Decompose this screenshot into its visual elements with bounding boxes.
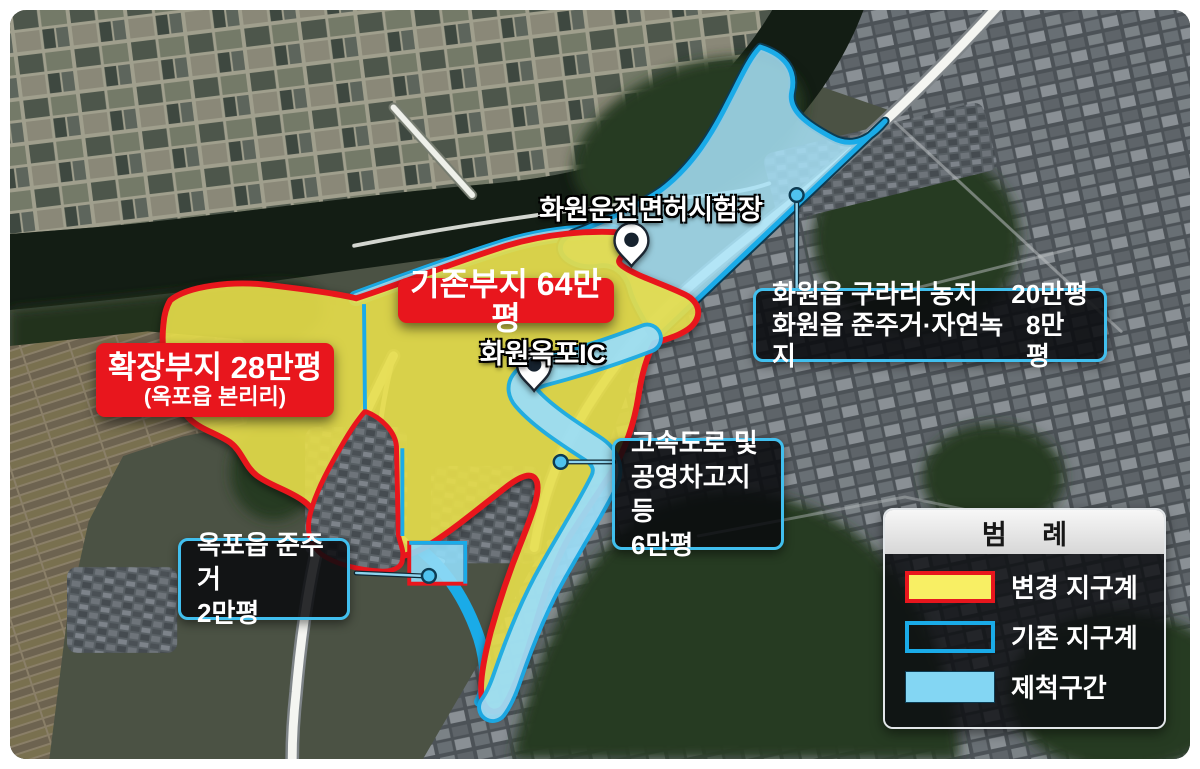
leader-dot-highway	[554, 455, 568, 469]
gurari-row-2-label: 화원읍 준주거·자연녹지	[772, 310, 1026, 372]
highway-callout-line-3: 6만평	[631, 528, 765, 562]
highway-callout-line-1: 고속도로 및	[631, 426, 765, 460]
existing-site-title: 기존부지 64만평	[398, 267, 614, 335]
okpo-callout: 옥포읍 준주거 2만평	[178, 538, 350, 620]
gurari-row-1-label: 화원읍 구라리 농지	[772, 279, 978, 310]
okpo-callout-line-2: 2만평	[197, 596, 331, 630]
gurari-row-2: 화원읍 준주거·자연녹지 8만평	[772, 310, 1088, 372]
leader-dot-okpo	[422, 569, 436, 583]
highway-callout-line-2: 공영차고지 등	[631, 460, 765, 528]
license-site-label: 화원운전면허시험장	[506, 188, 796, 227]
gurari-row-2-value: 8만평	[1026, 310, 1088, 372]
highway-callout: 고속도로 및 공영차고지 등 6만평	[612, 438, 784, 550]
existing-site-title-box: 기존부지 64만평	[398, 278, 614, 323]
legend: 범 례 변경 지구계 기존 지구계 제척구간	[883, 508, 1166, 729]
legend-item-changed: 변경 지구계	[905, 568, 1164, 605]
gurari-callout: 화원읍 구라리 농지 20만평 화원읍 준주거·자연녹지 8만평	[753, 288, 1107, 362]
legend-item-excluded: 제척구간	[905, 668, 1164, 705]
legend-item-existing: 기존 지구계	[905, 618, 1164, 655]
legend-swatch-excluded	[905, 671, 995, 703]
expansion-site-title: 확장부지 28만평	[108, 351, 322, 385]
gurari-row-1: 화원읍 구라리 농지 20만평	[772, 279, 1088, 310]
satellite-map: 화원운전면허시험장 화원옥포IC 기존부지 64만평 확장부지 28만평 (옥포…	[10, 10, 1190, 759]
okpo-callout-line-1: 옥포읍 준주거	[197, 528, 331, 596]
gurari-row-1-value: 20만평	[1011, 279, 1088, 310]
legend-title: 범 례	[885, 510, 1164, 554]
legend-label-existing: 기존 지구계	[1011, 618, 1138, 655]
legend-swatch-changed	[905, 571, 995, 603]
legend-label-excluded: 제척구간	[1011, 668, 1107, 705]
expansion-site-subtitle: (옥포읍 본리리)	[144, 385, 286, 409]
interchange-label: 화원옥포IC	[423, 332, 663, 371]
expansion-site-title-box: 확장부지 28만평 (옥포읍 본리리)	[96, 343, 334, 417]
legend-label-changed: 변경 지구계	[1011, 568, 1138, 605]
white-frame: 화원운전면허시험장 화원옥포IC 기존부지 64만평 확장부지 28만평 (옥포…	[0, 0, 1200, 769]
legend-body: 변경 지구계 기존 지구계 제척구간	[885, 554, 1164, 727]
legend-swatch-existing	[905, 621, 995, 653]
